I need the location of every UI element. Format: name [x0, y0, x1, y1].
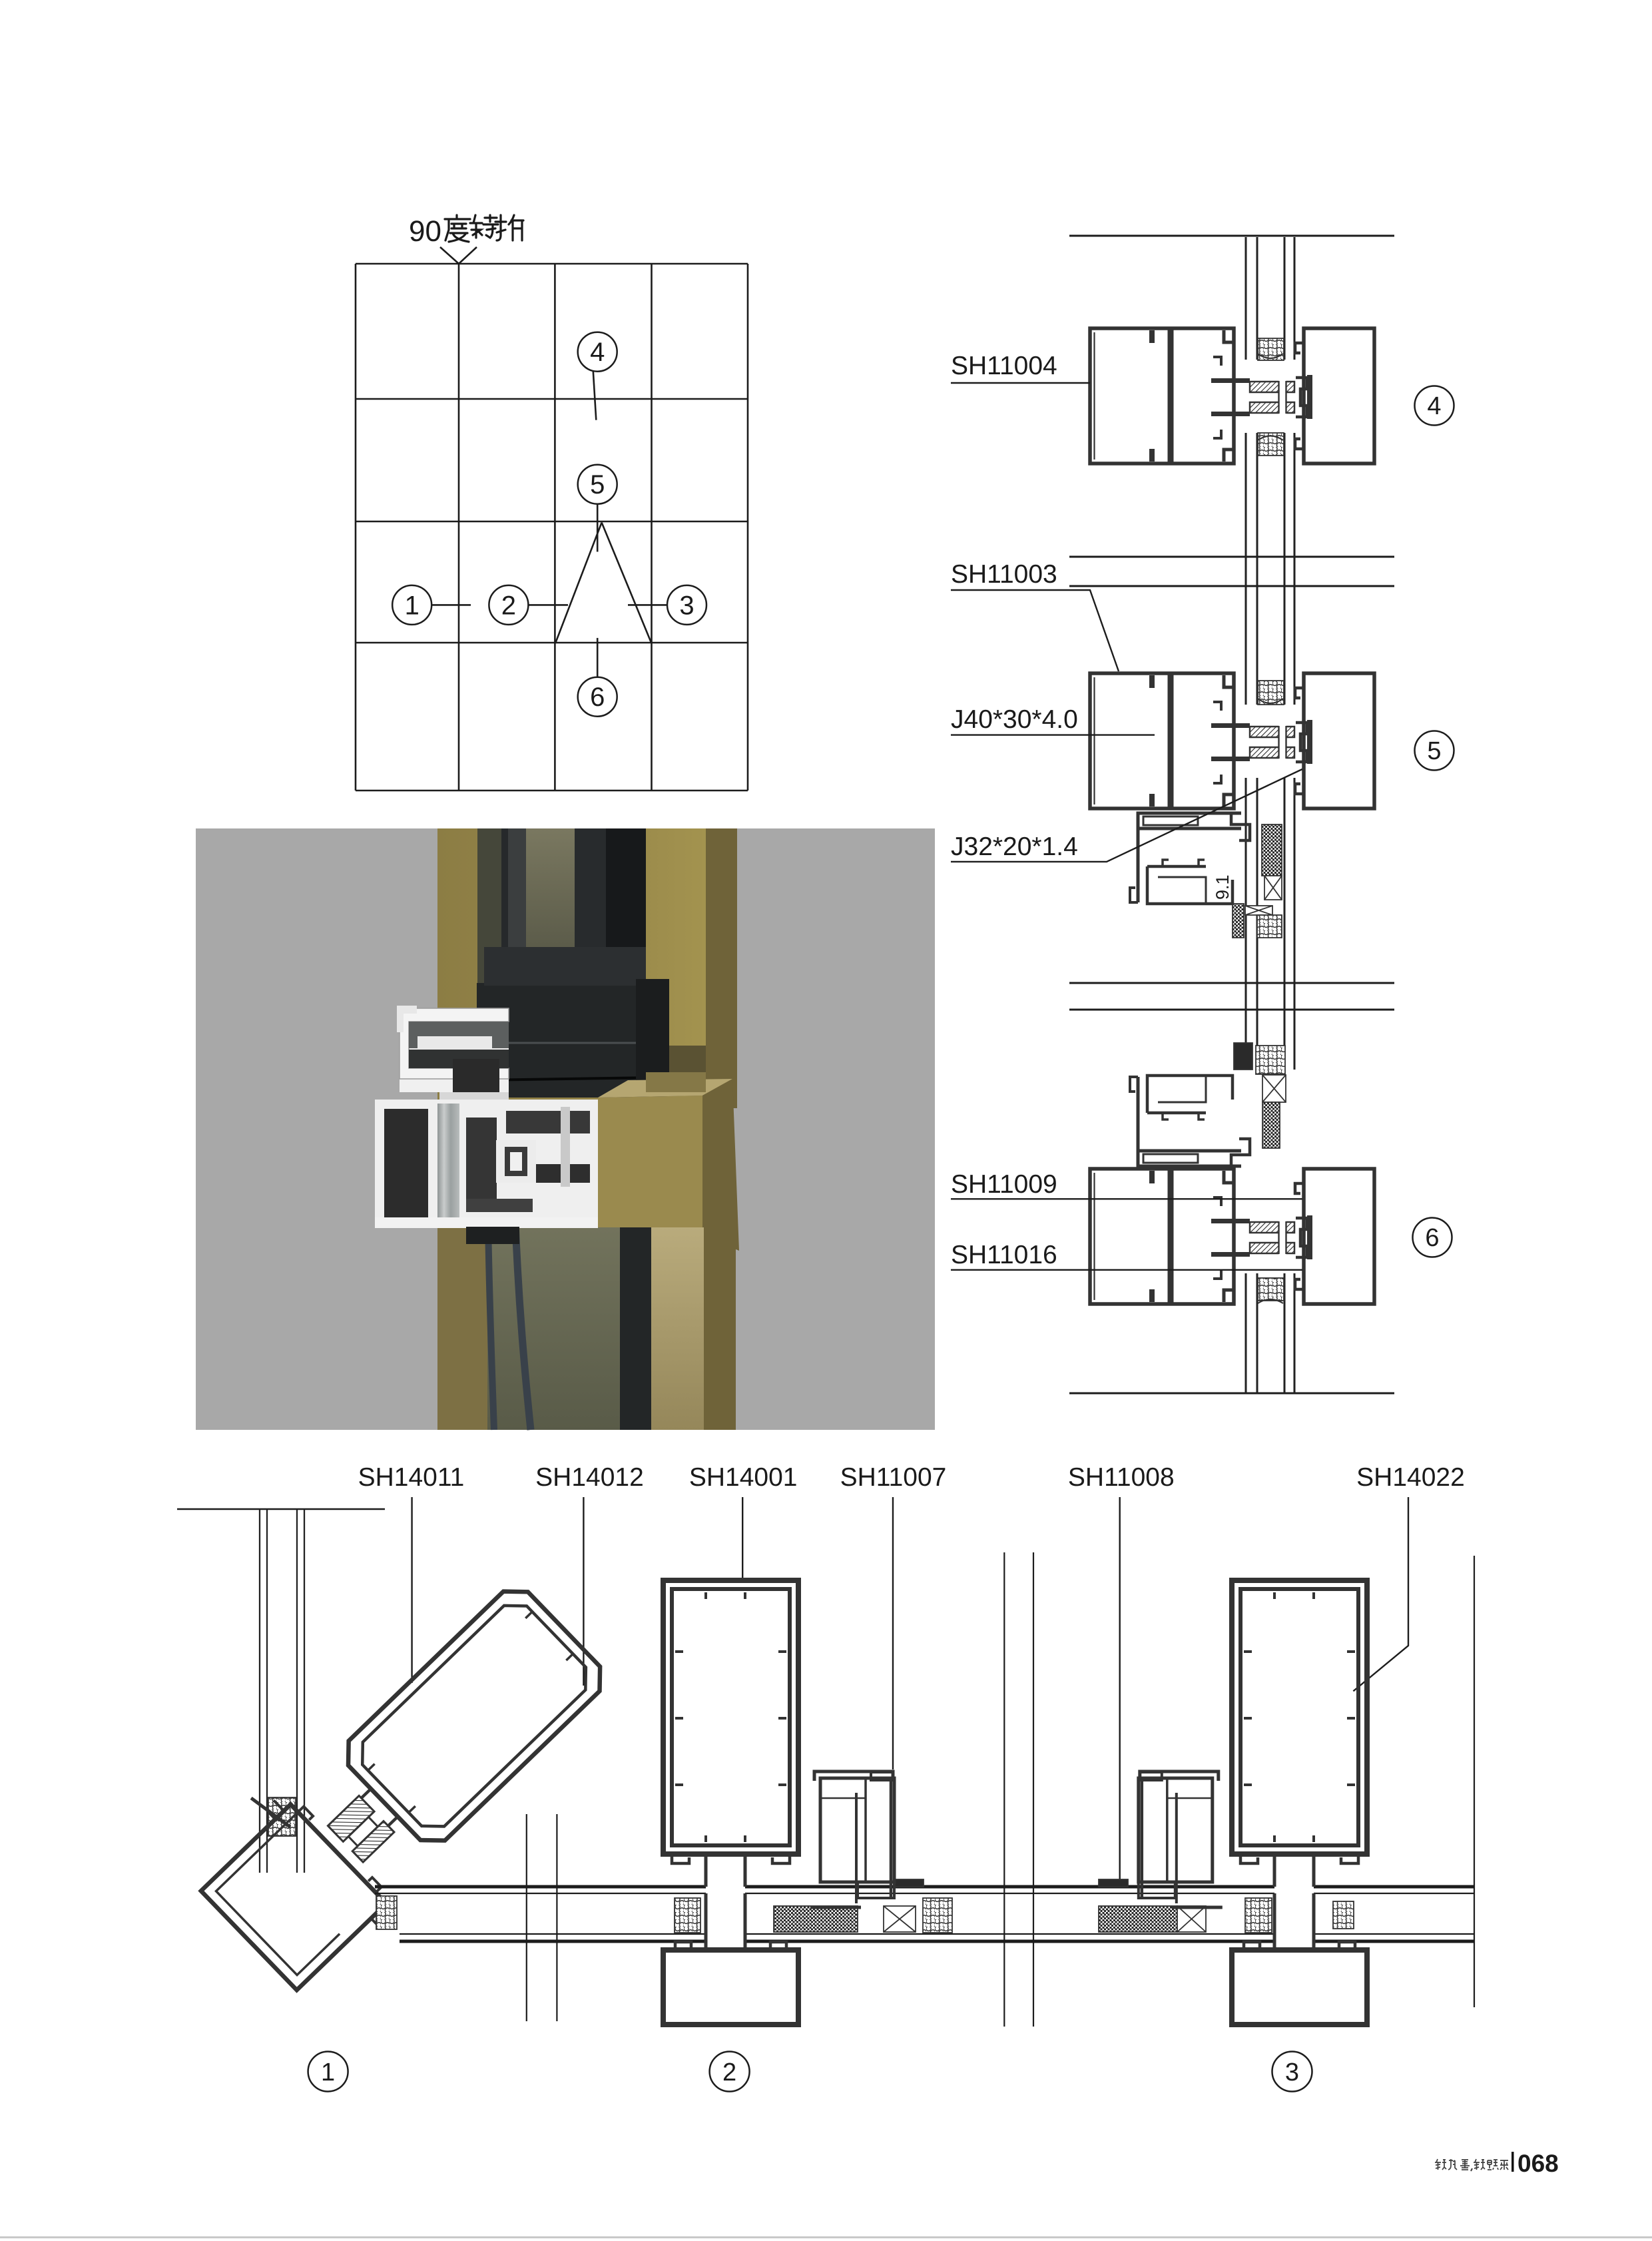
svg-text:9.1: 9.1 — [1213, 874, 1233, 900]
svg-text:J40*30*4.0: J40*30*4.0 — [951, 705, 1078, 734]
svg-text:068: 068 — [1517, 2150, 1559, 2177]
svg-text:SH14012: SH14012 — [535, 1463, 644, 1492]
svg-text:90: 90 — [409, 215, 441, 248]
svg-text:3: 3 — [679, 591, 694, 620]
svg-text:6: 6 — [1425, 1224, 1439, 1252]
svg-text:J32*20*1.4: J32*20*1.4 — [951, 832, 1078, 861]
svg-text:2: 2 — [501, 591, 516, 620]
svg-text:SH11008: SH11008 — [1068, 1463, 1175, 1492]
svg-text:SH11007: SH11007 — [840, 1463, 947, 1492]
svg-text:4: 4 — [1427, 392, 1441, 420]
svg-text:SH11003: SH11003 — [951, 560, 1057, 589]
svg-text:3: 3 — [1285, 2059, 1299, 2086]
svg-text:SH14022: SH14022 — [1356, 1463, 1465, 1492]
svg-text:SH11004: SH11004 — [951, 352, 1057, 380]
svg-text:5: 5 — [590, 470, 605, 499]
svg-text:SH14001: SH14001 — [689, 1463, 798, 1492]
svg-text:2: 2 — [722, 2059, 736, 2086]
svg-text:1: 1 — [405, 591, 419, 620]
svg-text:1: 1 — [321, 2059, 335, 2086]
svg-text:4: 4 — [590, 338, 605, 367]
svg-text:5: 5 — [1427, 737, 1441, 765]
svg-text:SH11016: SH11016 — [951, 1241, 1057, 1269]
svg-text:6: 6 — [590, 683, 605, 712]
svg-text:SH11009: SH11009 — [951, 1170, 1057, 1199]
svg-text:SH14011: SH14011 — [358, 1463, 465, 1492]
